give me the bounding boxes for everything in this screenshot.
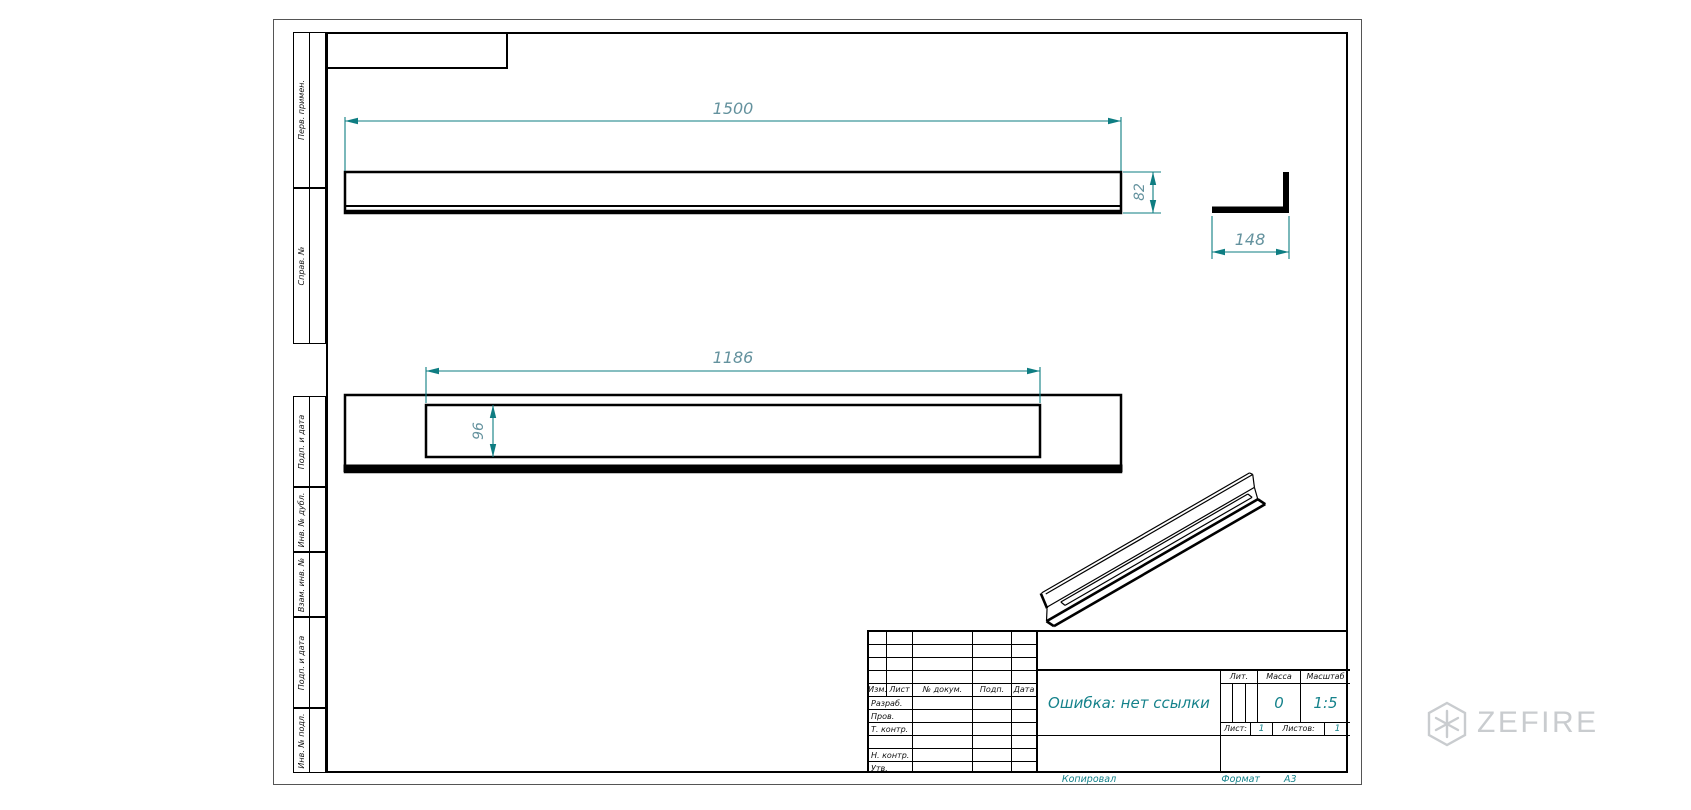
tb-header-data: Дата — [1012, 684, 1036, 697]
margin-box-podp-data-2: Подп. и дата — [293, 617, 326, 708]
margin-label: Перв. примен. — [298, 80, 306, 140]
tb-row-blank — [871, 736, 911, 749]
margin-box-label-cell: Подп. и дата — [294, 618, 310, 707]
margin-box-blank-cell — [310, 709, 325, 772]
tb-row-razrab: Разраб. — [871, 697, 911, 710]
tb-header-ndokum: № докум. — [913, 684, 973, 697]
tb-row-nkontr: Н. контр. — [871, 749, 911, 762]
dim-1500-text: 1500 — [683, 100, 783, 118]
tb-sheet-label: Лист: — [1221, 723, 1251, 736]
tb-lit-cell-2 — [1233, 684, 1246, 723]
tb-organization-cell — [1038, 736, 1221, 771]
margin-box-vzam-inv: Взам. инв. № — [293, 552, 326, 617]
margin-label: Справ. № — [298, 247, 306, 286]
tb-bottom-right-cell — [1221, 736, 1350, 771]
tb-doc-title-cell: Ошибка: нет ссылки — [1038, 671, 1221, 736]
tb-row-prov: Пров. — [871, 710, 911, 723]
tb-mass-value: 0 — [1258, 684, 1301, 723]
margin-box-blank-cell — [310, 397, 325, 486]
top-left-stamp-box — [326, 32, 508, 69]
dim-1186-text: 1186 — [683, 349, 783, 367]
tb-scale-label: Масштаб — [1301, 671, 1350, 684]
tb-lit-cell-3 — [1246, 684, 1258, 723]
margin-box-label-cell: Инв. № дубл. — [294, 488, 310, 551]
tb-mass-label: Масса — [1258, 671, 1301, 684]
margin-box-blank-cell — [310, 189, 325, 343]
format-label: Формат А3 — [1184, 775, 1334, 785]
margin-box-label-cell: Инв. № подл. — [294, 709, 310, 772]
margin-box-blank-cell — [310, 488, 325, 551]
drawing-page: Перв. примен. Справ. № Подп. и дата Инв.… — [273, 19, 1362, 785]
margin-label: Инв. № дубл. — [298, 492, 306, 547]
margin-label: Взам. инв. № — [298, 557, 306, 611]
tb-sheets-value: 1 — [1325, 723, 1350, 736]
margin-box-label-cell: Подп. и дата — [294, 397, 310, 486]
format-value: А3 — [1284, 774, 1297, 785]
margin-box-blank-cell — [310, 553, 325, 616]
dim-96-text: 96 — [470, 416, 488, 446]
dim-148-text: 148 — [1210, 231, 1290, 249]
margin-box-label-cell: Взам. инв. № — [294, 553, 310, 616]
tb-row-utv: Утв. — [871, 762, 911, 775]
tb-lit-label: Лит. — [1221, 671, 1258, 684]
format-word: Формат — [1221, 774, 1260, 785]
margin-box-blank-cell — [310, 618, 325, 707]
margin-label: Инв. № подл. — [298, 713, 306, 768]
title-block: Изм. Лист № докум. Подп. Дата Разраб. Пр… — [867, 630, 1348, 773]
tb-header-podp: Подп. — [973, 684, 1012, 697]
margin-box-inv-dubl: Инв. № дубл. — [293, 487, 326, 552]
tb-header-list: Лист — [887, 684, 913, 697]
tb-scale-value: 1:5 — [1301, 684, 1350, 723]
tb-sheets-label: Листов: — [1273, 723, 1325, 736]
margin-box-label-cell: Справ. № — [294, 189, 310, 343]
tb-lit-cell-1 — [1221, 684, 1233, 723]
margin-label: Подп. и дата — [298, 635, 306, 690]
dim-82-text: 82 — [1131, 177, 1149, 207]
zefire-logo-icon — [1424, 700, 1470, 748]
copied-label: Копировал — [989, 775, 1189, 785]
tb-designation-cell — [1038, 632, 1350, 671]
margin-label: Подп. и дата — [298, 414, 306, 469]
title-block-left-section: Изм. Лист № докум. Подп. Дата Разраб. Пр… — [869, 632, 1038, 771]
tb-header-izm: Изм. — [869, 684, 887, 697]
title-block-right-section: Ошибка: нет ссылки Лит. Масса Масштаб 0 … — [1038, 632, 1350, 771]
margin-box-podp-data-1: Подп. и дата — [293, 396, 326, 487]
drawing-canvas: Перв. примен. Справ. № Подп. и дата Инв.… — [0, 0, 1691, 810]
zefire-watermark-text: ZEFIRE — [1477, 705, 1599, 741]
margin-box-sprav: Справ. № — [293, 188, 326, 344]
tb-sheet-value: 1 — [1251, 723, 1273, 736]
margin-box-inv-podl: Инв. № подл. — [293, 708, 326, 773]
margin-box-perv-primen: Перв. примен. — [293, 32, 326, 188]
margin-box-blank-cell — [310, 33, 325, 187]
tb-row-tkontr: Т. контр. — [871, 723, 911, 736]
revision-table — [869, 632, 1036, 684]
margin-box-label-cell: Перв. примен. — [294, 33, 310, 187]
